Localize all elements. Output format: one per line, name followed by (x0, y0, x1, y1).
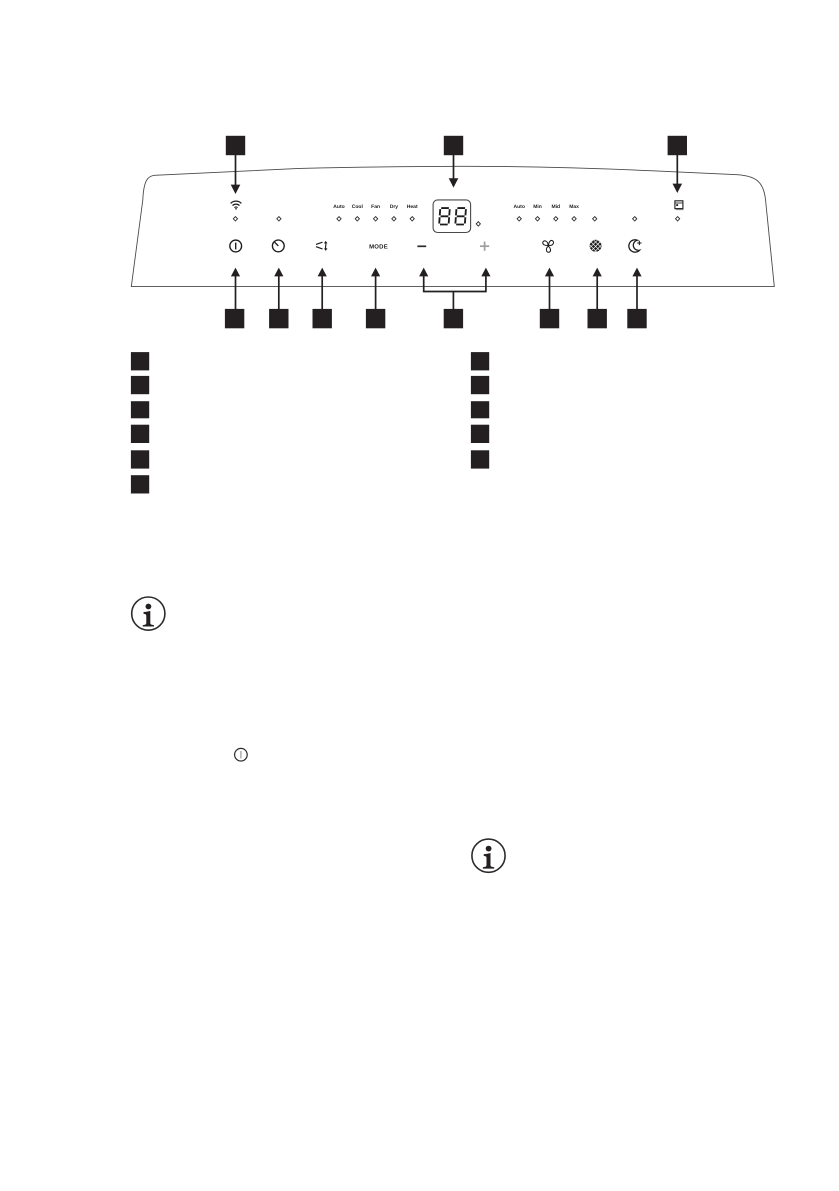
svg-text:Cool: Cool (352, 204, 364, 210)
svg-text:Heat: Heat (407, 204, 418, 210)
svg-text:MODE: MODE (369, 243, 388, 250)
svg-text:Max: Max (569, 204, 579, 210)
svg-text:Min: Min (533, 204, 542, 210)
svg-text:Auto: Auto (333, 204, 344, 210)
svg-text:Dry: Dry (390, 204, 399, 210)
svg-text:Fan: Fan (371, 204, 380, 210)
svg-text:Mid: Mid (551, 204, 560, 210)
svg-text:Auto: Auto (514, 204, 525, 210)
